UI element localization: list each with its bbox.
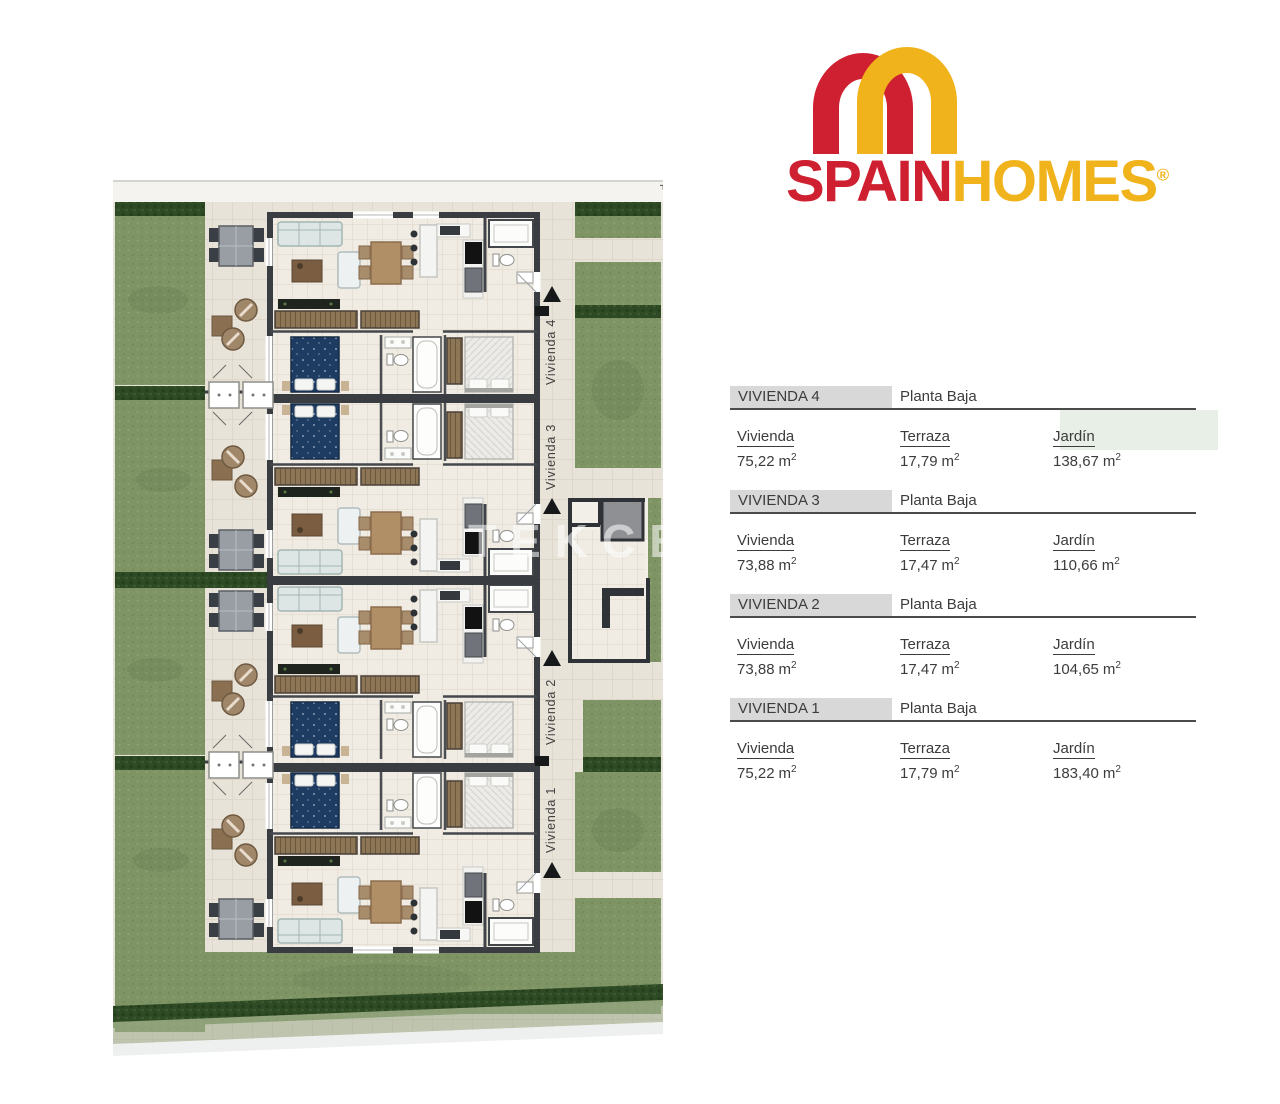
metric-label: Vivienda — [737, 636, 794, 655]
divider — [730, 408, 1196, 410]
spainhomes-logo: SPAINHOMES® — [770, 36, 1270, 216]
floor-label: Planta Baja — [900, 386, 977, 408]
divider — [730, 720, 1196, 722]
floor-label: Planta Baja — [900, 698, 977, 720]
units-table: VIVIENDA 4 Planta Baja Vivienda 75,22m2 … — [730, 386, 1200, 802]
metric-vivienda: Vivienda 75,22m2 — [737, 740, 887, 782]
unit-section-vivienda-1: VIVIENDA 1 Planta Baja Vivienda 75,22m2 … — [730, 698, 1200, 802]
registered-mark: ® — [1157, 166, 1168, 185]
metric-value: 17,79m2 — [900, 764, 1050, 782]
metric-value: 104,65m2 — [1053, 660, 1203, 678]
logo-arches-icon — [800, 46, 966, 158]
metric-label: Vivienda — [737, 532, 794, 551]
metric-terraza: Terraza 17,47m2 — [900, 636, 1050, 678]
metric-label: Vivienda — [737, 740, 794, 759]
unit-section-vivienda-2: VIVIENDA 2 Planta Baja Vivienda 73,88m2 … — [730, 594, 1200, 698]
section-title: VIVIENDA 4 — [730, 386, 892, 408]
logo-word-spain: SPAIN — [786, 149, 951, 214]
metric-label: Jardín — [1053, 532, 1095, 551]
section-title: VIVIENDA 2 — [730, 594, 892, 616]
divider — [730, 512, 1196, 514]
metric-label: Jardín — [1053, 636, 1095, 655]
floor-label: Planta Baja — [900, 594, 977, 616]
metric-label: Terraza — [900, 740, 950, 759]
metric-value: 17,79m2 — [900, 452, 1050, 470]
unit-section-vivienda-4: VIVIENDA 4 Planta Baja Vivienda 75,22m2 … — [730, 386, 1200, 490]
floor-label: Planta Baja — [900, 490, 977, 512]
utility-structure — [568, 498, 650, 663]
site-plan-drawing: Vivienda 4 Vivienda 3 Vivienda 2 Viviend… — [113, 180, 663, 1060]
metric-vivienda: Vivienda 73,88m2 — [737, 636, 887, 678]
unit-label-vivienda-4: Vivienda 4 — [544, 319, 558, 385]
metric-value: 75,22m2 — [737, 764, 887, 782]
party-wall — [267, 576, 540, 585]
metric-terraza: Terraza 17,79m2 — [900, 740, 1050, 782]
metric-label: Jardín — [1053, 428, 1095, 447]
metric-jardin: Jardín 138,67m2 — [1053, 428, 1203, 470]
wall-stub — [535, 306, 549, 316]
logo-word-homes: HOMES — [951, 149, 1156, 214]
unit-label-vivienda-3: Vivienda 3 — [544, 424, 558, 490]
section-title: VIVIENDA 3 — [730, 490, 892, 512]
metric-value: 73,88m2 — [737, 660, 887, 678]
metric-label: Terraza — [900, 532, 950, 551]
metric-label: Terraza — [900, 428, 950, 447]
site-plan: Vivienda 4 Vivienda 3 Vivienda 2 Viviend… — [113, 180, 663, 1060]
corner-mark: F — [657, 184, 663, 190]
left-gardens — [115, 216, 205, 1032]
bottom-garden — [113, 952, 663, 1060]
section-title: VIVIENDA 1 — [730, 698, 892, 720]
metric-label: Vivienda — [737, 428, 794, 447]
metric-vivienda: Vivienda 75,22m2 — [737, 428, 887, 470]
metric-label: Terraza — [900, 636, 950, 655]
unit-section-vivienda-3: VIVIENDA 3 Planta Baja Vivienda 73,88m2 … — [730, 490, 1200, 594]
metric-vivienda: Vivienda 73,88m2 — [737, 532, 887, 574]
party-wall — [267, 763, 540, 772]
metric-value: 138,67m2 — [1053, 452, 1203, 470]
unit-label-vivienda-2: Vivienda 2 — [544, 679, 558, 745]
divider — [730, 616, 1196, 618]
wall-stub — [535, 756, 549, 766]
party-wall — [267, 394, 540, 403]
metric-jardin: Jardín 104,65m2 — [1053, 636, 1203, 678]
metric-label: Jardín — [1053, 740, 1095, 759]
metric-jardin: Jardín 110,66m2 — [1053, 532, 1203, 574]
metric-value: 17,47m2 — [900, 660, 1050, 678]
metric-value: 110,66m2 — [1053, 556, 1203, 574]
metric-terraza: Terraza 17,79m2 — [900, 428, 1050, 470]
metric-value: 73,88m2 — [737, 556, 887, 574]
metric-jardin: Jardín 183,40m2 — [1053, 740, 1203, 782]
logo-wordmark: SPAINHOMES® — [786, 148, 1168, 215]
metric-value: 17,47m2 — [900, 556, 1050, 574]
unit-label-vivienda-1: Vivienda 1 — [544, 787, 558, 853]
flyer-page: { "brand": { "word_spain": "SPAIN", "wor… — [0, 0, 1280, 1104]
metric-value: 75,22m2 — [737, 452, 887, 470]
metric-value: 183,40m2 — [1053, 764, 1203, 782]
metric-terraza: Terraza 17,47m2 — [900, 532, 1050, 574]
